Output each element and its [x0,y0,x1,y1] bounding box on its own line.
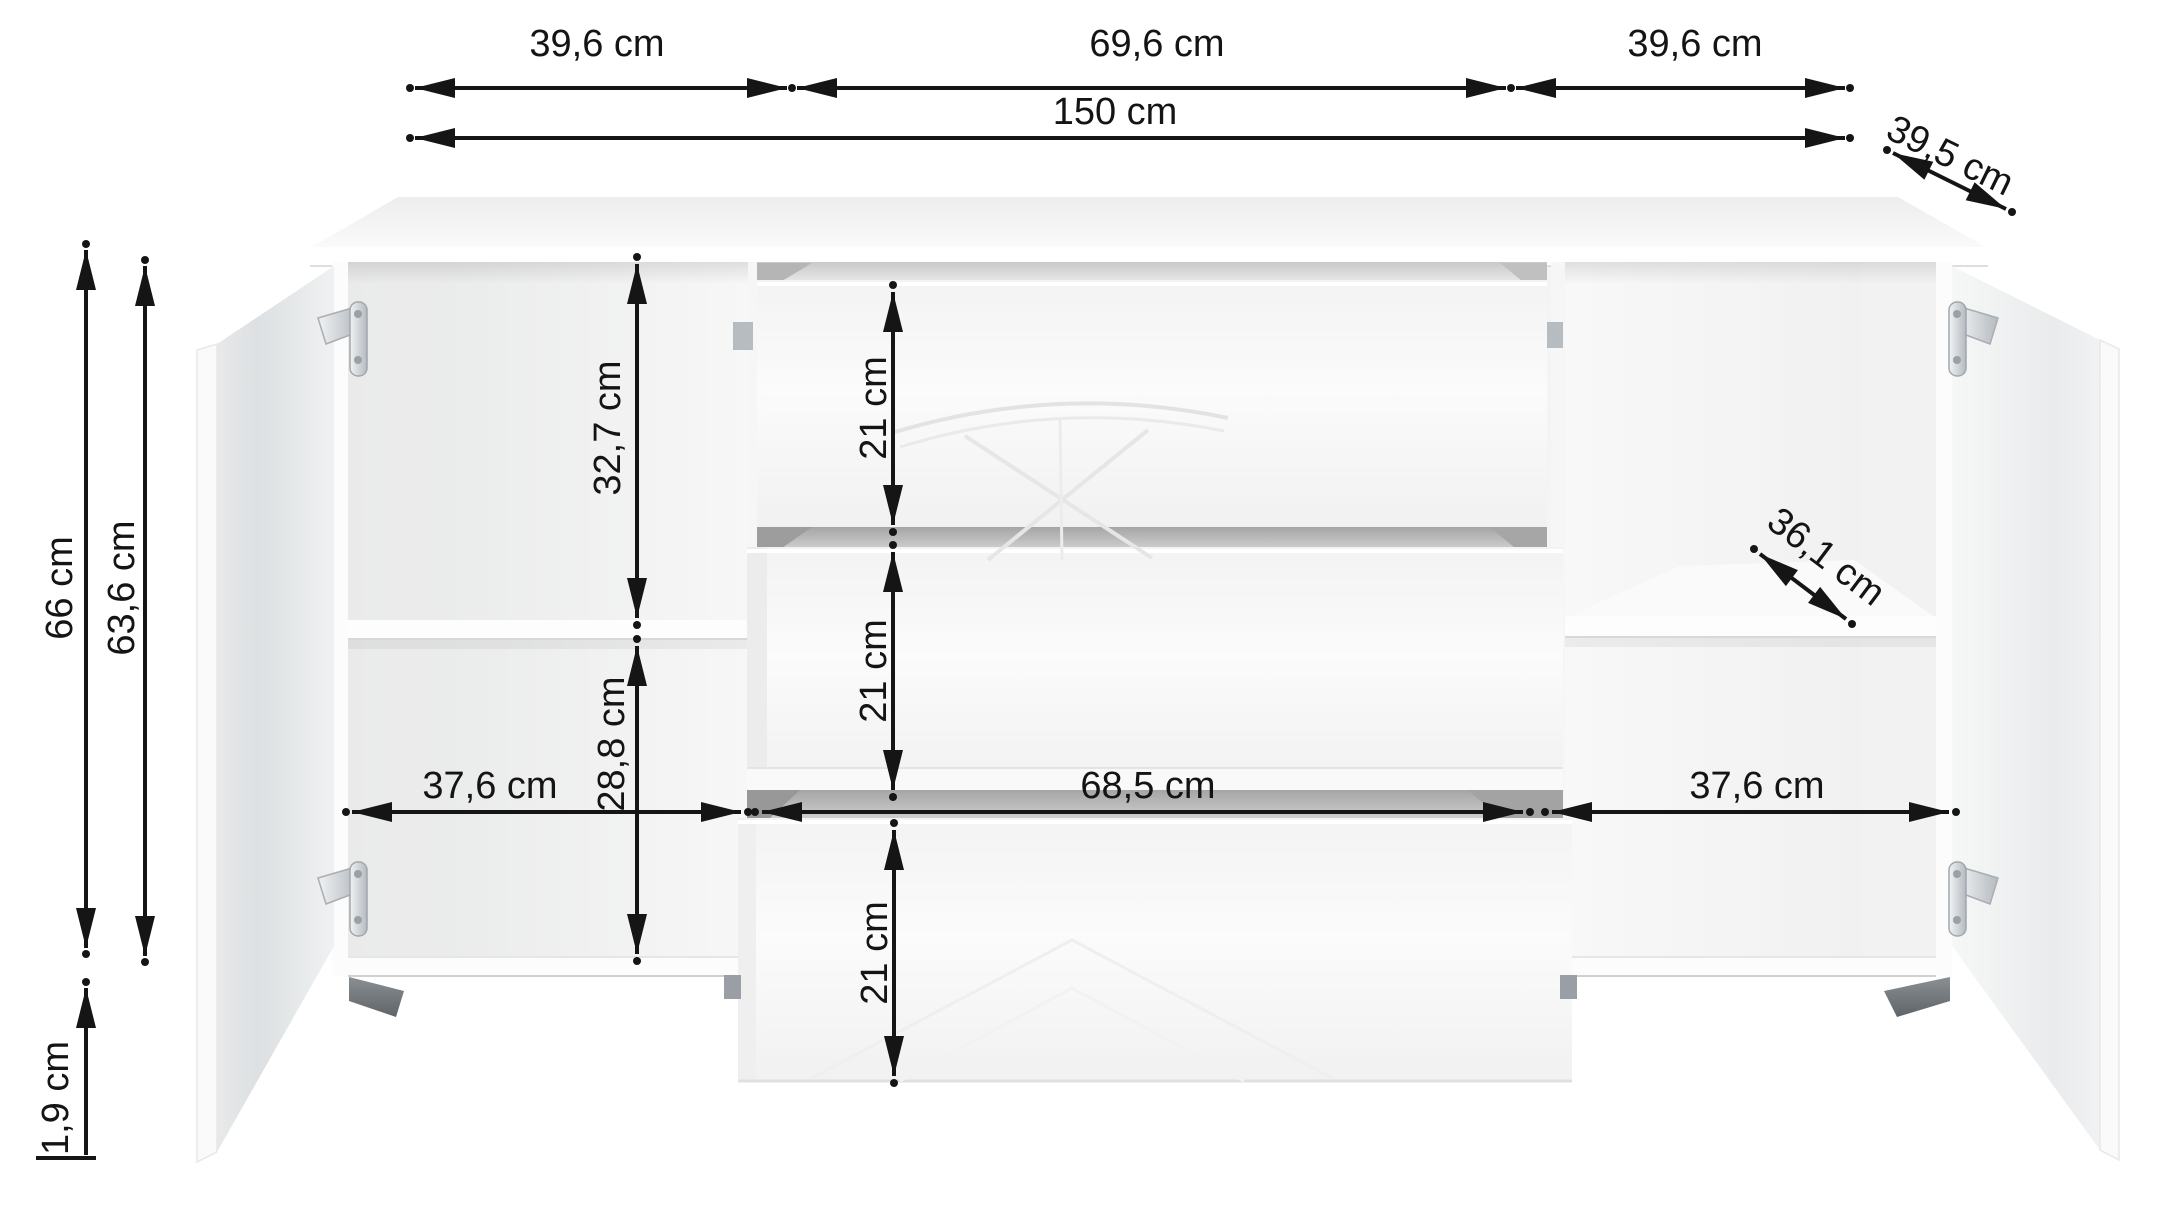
hinge-screw-icon [354,356,362,364]
dim-drawer-middle-label: 21 cm [853,619,895,722]
foot-left [349,977,404,1017]
tick-dot [633,635,641,643]
dim-inner-left-label: 37,6 cm [422,765,557,807]
dim-inner-right-label: 37,6 cm [1689,765,1824,807]
dim-width-right-label: 39,6 cm [1627,23,1762,65]
drawer-middle-side-left [747,547,767,790]
tick-dot [1846,84,1854,92]
dim-width-center-label: 69,6 cm [1089,23,1224,65]
foot-center-right [1560,975,1577,999]
tick-dot [1507,84,1515,92]
hinge-screw-icon [1953,870,1961,878]
dim-inner-center-label: 68,5 cm [1080,765,1215,807]
right-compartment-top-shadow [1565,262,1936,284]
tick-dot [889,281,897,289]
tick-dot [890,819,898,827]
hinge-screw-icon [1953,310,1961,318]
tick-dot [342,808,350,816]
diagram-stage: 39,6 cm 69,6 cm 39,6 cm 150 cm 39,5 cm 6… [0,0,2168,1216]
hinge-screw-icon [354,870,362,878]
tick-dot [1846,134,1854,142]
drawer-bottom-side-left [738,818,756,1082]
tick-dot [2008,208,2016,216]
foot-right [1884,977,1950,1017]
tick-dot [141,958,149,966]
tick-dot [82,240,90,248]
tick-dot [633,957,641,965]
tick-dot [889,793,897,801]
reflection-table-leg3 [1060,420,1062,560]
tick-dot [788,84,796,92]
tick-dot [1952,808,1960,816]
dim-drawer-bottom-label: 21 cm [854,901,896,1004]
tick-dot [751,808,759,816]
drawer-gap-top [757,262,1547,282]
tick-dot [744,808,752,816]
left-compartment-top-shadow [348,262,748,284]
tick-dot [141,256,149,264]
dim-width-left-label: 39,6 cm [529,23,664,65]
tick-dot [1750,545,1758,553]
dim-total-width-label: 150 cm [1053,91,1178,133]
dim-plinth-label: 1,9 cm [35,1041,77,1155]
right-shelf-shadow [1565,638,1936,647]
tick-dot [889,528,897,536]
right-shelf [1565,616,1936,636]
tick-dot [82,950,90,958]
dim-left-lower-label: 28,8 cm [591,676,633,811]
dim-height-inner-label: 63,6 cm [101,520,143,655]
left-shelf [348,620,748,638]
tick-dot [406,134,414,142]
dim-height-total-label: 66 cm [39,536,81,639]
hinge-screw-icon [354,916,362,924]
hinge-screw-icon [1953,916,1961,924]
right-door [1952,266,2100,1150]
hinge-screw-icon [354,310,362,318]
sideboard [197,197,2119,1162]
tick-dot [633,253,641,261]
tick-dot [1541,808,1549,816]
tick-dot [633,621,641,629]
left-side-panel-edge [332,262,348,976]
tick-dot [406,84,414,92]
tick-dot [890,1079,898,1087]
left-door [217,266,334,1152]
dim-left-upper-label: 32,7 cm [587,360,629,495]
tick-dot [82,978,90,986]
tick-dot [1848,620,1856,628]
foot-center-left [724,975,741,999]
drawer-gap-1 [757,527,1547,548]
tick-dot [1526,808,1534,816]
tick-dot [889,541,897,549]
left-shelf-shadow [348,640,748,649]
runner-bracket-right [1547,322,1563,348]
hinge-screw-icon [1953,356,1961,364]
runner-bracket-left [733,322,753,350]
dim-drawer-top-label: 21 cm [853,356,895,459]
left-door-edge [197,344,217,1162]
cabinet-top-surface [312,197,1986,247]
right-door-edge [2100,340,2119,1160]
